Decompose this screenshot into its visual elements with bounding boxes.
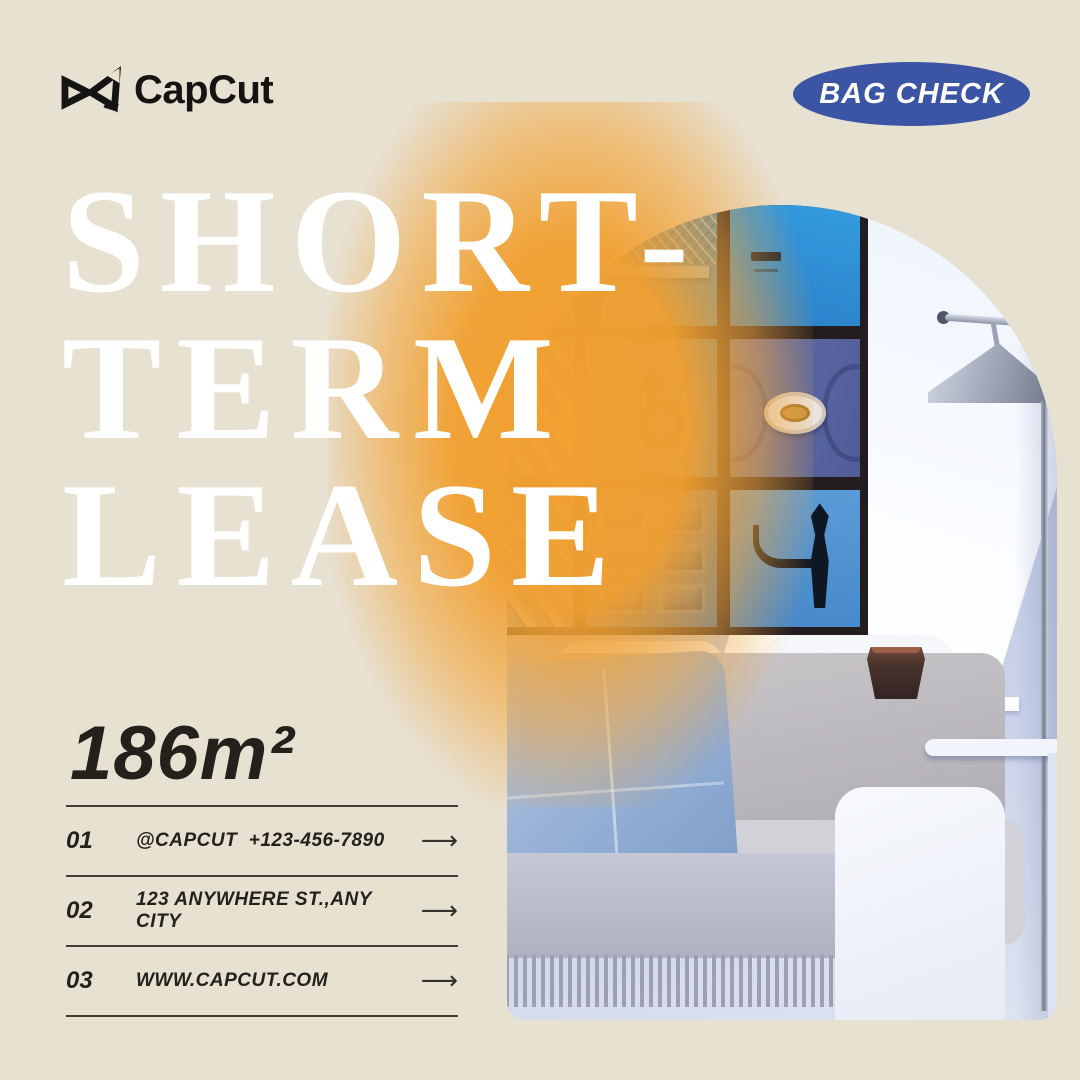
row-number: 03 bbox=[66, 967, 136, 995]
row-number: 01 bbox=[66, 827, 136, 855]
headline-line-3: LEASE bbox=[62, 462, 704, 609]
c-shaped-side-table bbox=[925, 739, 1057, 756]
row-text: WWW.CAPCUT.COM bbox=[136, 970, 413, 992]
door-tile-plain-handle bbox=[730, 205, 860, 326]
fringed-throw-blanket bbox=[507, 853, 852, 958]
area-size-label: 186m² bbox=[70, 710, 295, 797]
poster-canvas: CapCut BAG CHECK bbox=[0, 0, 1080, 1080]
headline: SHORT- TERM LEASE bbox=[62, 168, 704, 609]
c-shaped-side-table-leg bbox=[1048, 753, 1057, 1018]
row-text: 123 ANYWHERE ST.,ANY CITY bbox=[136, 889, 413, 933]
sofa-armrest bbox=[835, 787, 1005, 1020]
arrow-right-icon: ⟶ bbox=[421, 966, 458, 996]
row-text: @CAPCUT +123-456-7890 bbox=[136, 830, 413, 852]
contact-row-address[interactable]: 02 123 ANYWHERE ST.,ANY CITY ⟶ bbox=[66, 875, 458, 945]
contact-row-website[interactable]: 03 WWW.CAPCUT.COM ⟶ bbox=[66, 945, 458, 1017]
bag-check-label: BAG CHECK bbox=[819, 78, 1004, 111]
capcut-icon bbox=[60, 62, 122, 118]
contact-list: 01 @CAPCUT +123-456-7890 ⟶ 02 123 ANYWHE… bbox=[66, 805, 458, 1017]
bag-check-badge[interactable]: BAG CHECK bbox=[793, 62, 1030, 126]
door-tile-oval-plate bbox=[730, 339, 860, 476]
contact-row-phone[interactable]: 01 @CAPCUT +123-456-7890 ⟶ bbox=[66, 805, 458, 875]
capcut-logo[interactable]: CapCut bbox=[60, 62, 273, 118]
headline-line-1: SHORT- bbox=[62, 168, 704, 315]
arrow-right-icon: ⟶ bbox=[421, 826, 458, 856]
headline-line-2: TERM bbox=[62, 315, 704, 462]
door-tile-long-handle bbox=[730, 490, 860, 627]
floor-lamp-pole bbox=[1041, 401, 1048, 1011]
row-number: 02 bbox=[66, 897, 136, 925]
arrow-right-icon: ⟶ bbox=[421, 896, 458, 926]
capcut-wordmark: CapCut bbox=[134, 68, 273, 113]
blanket-fringe bbox=[507, 955, 852, 1007]
planter-vase bbox=[867, 645, 925, 699]
